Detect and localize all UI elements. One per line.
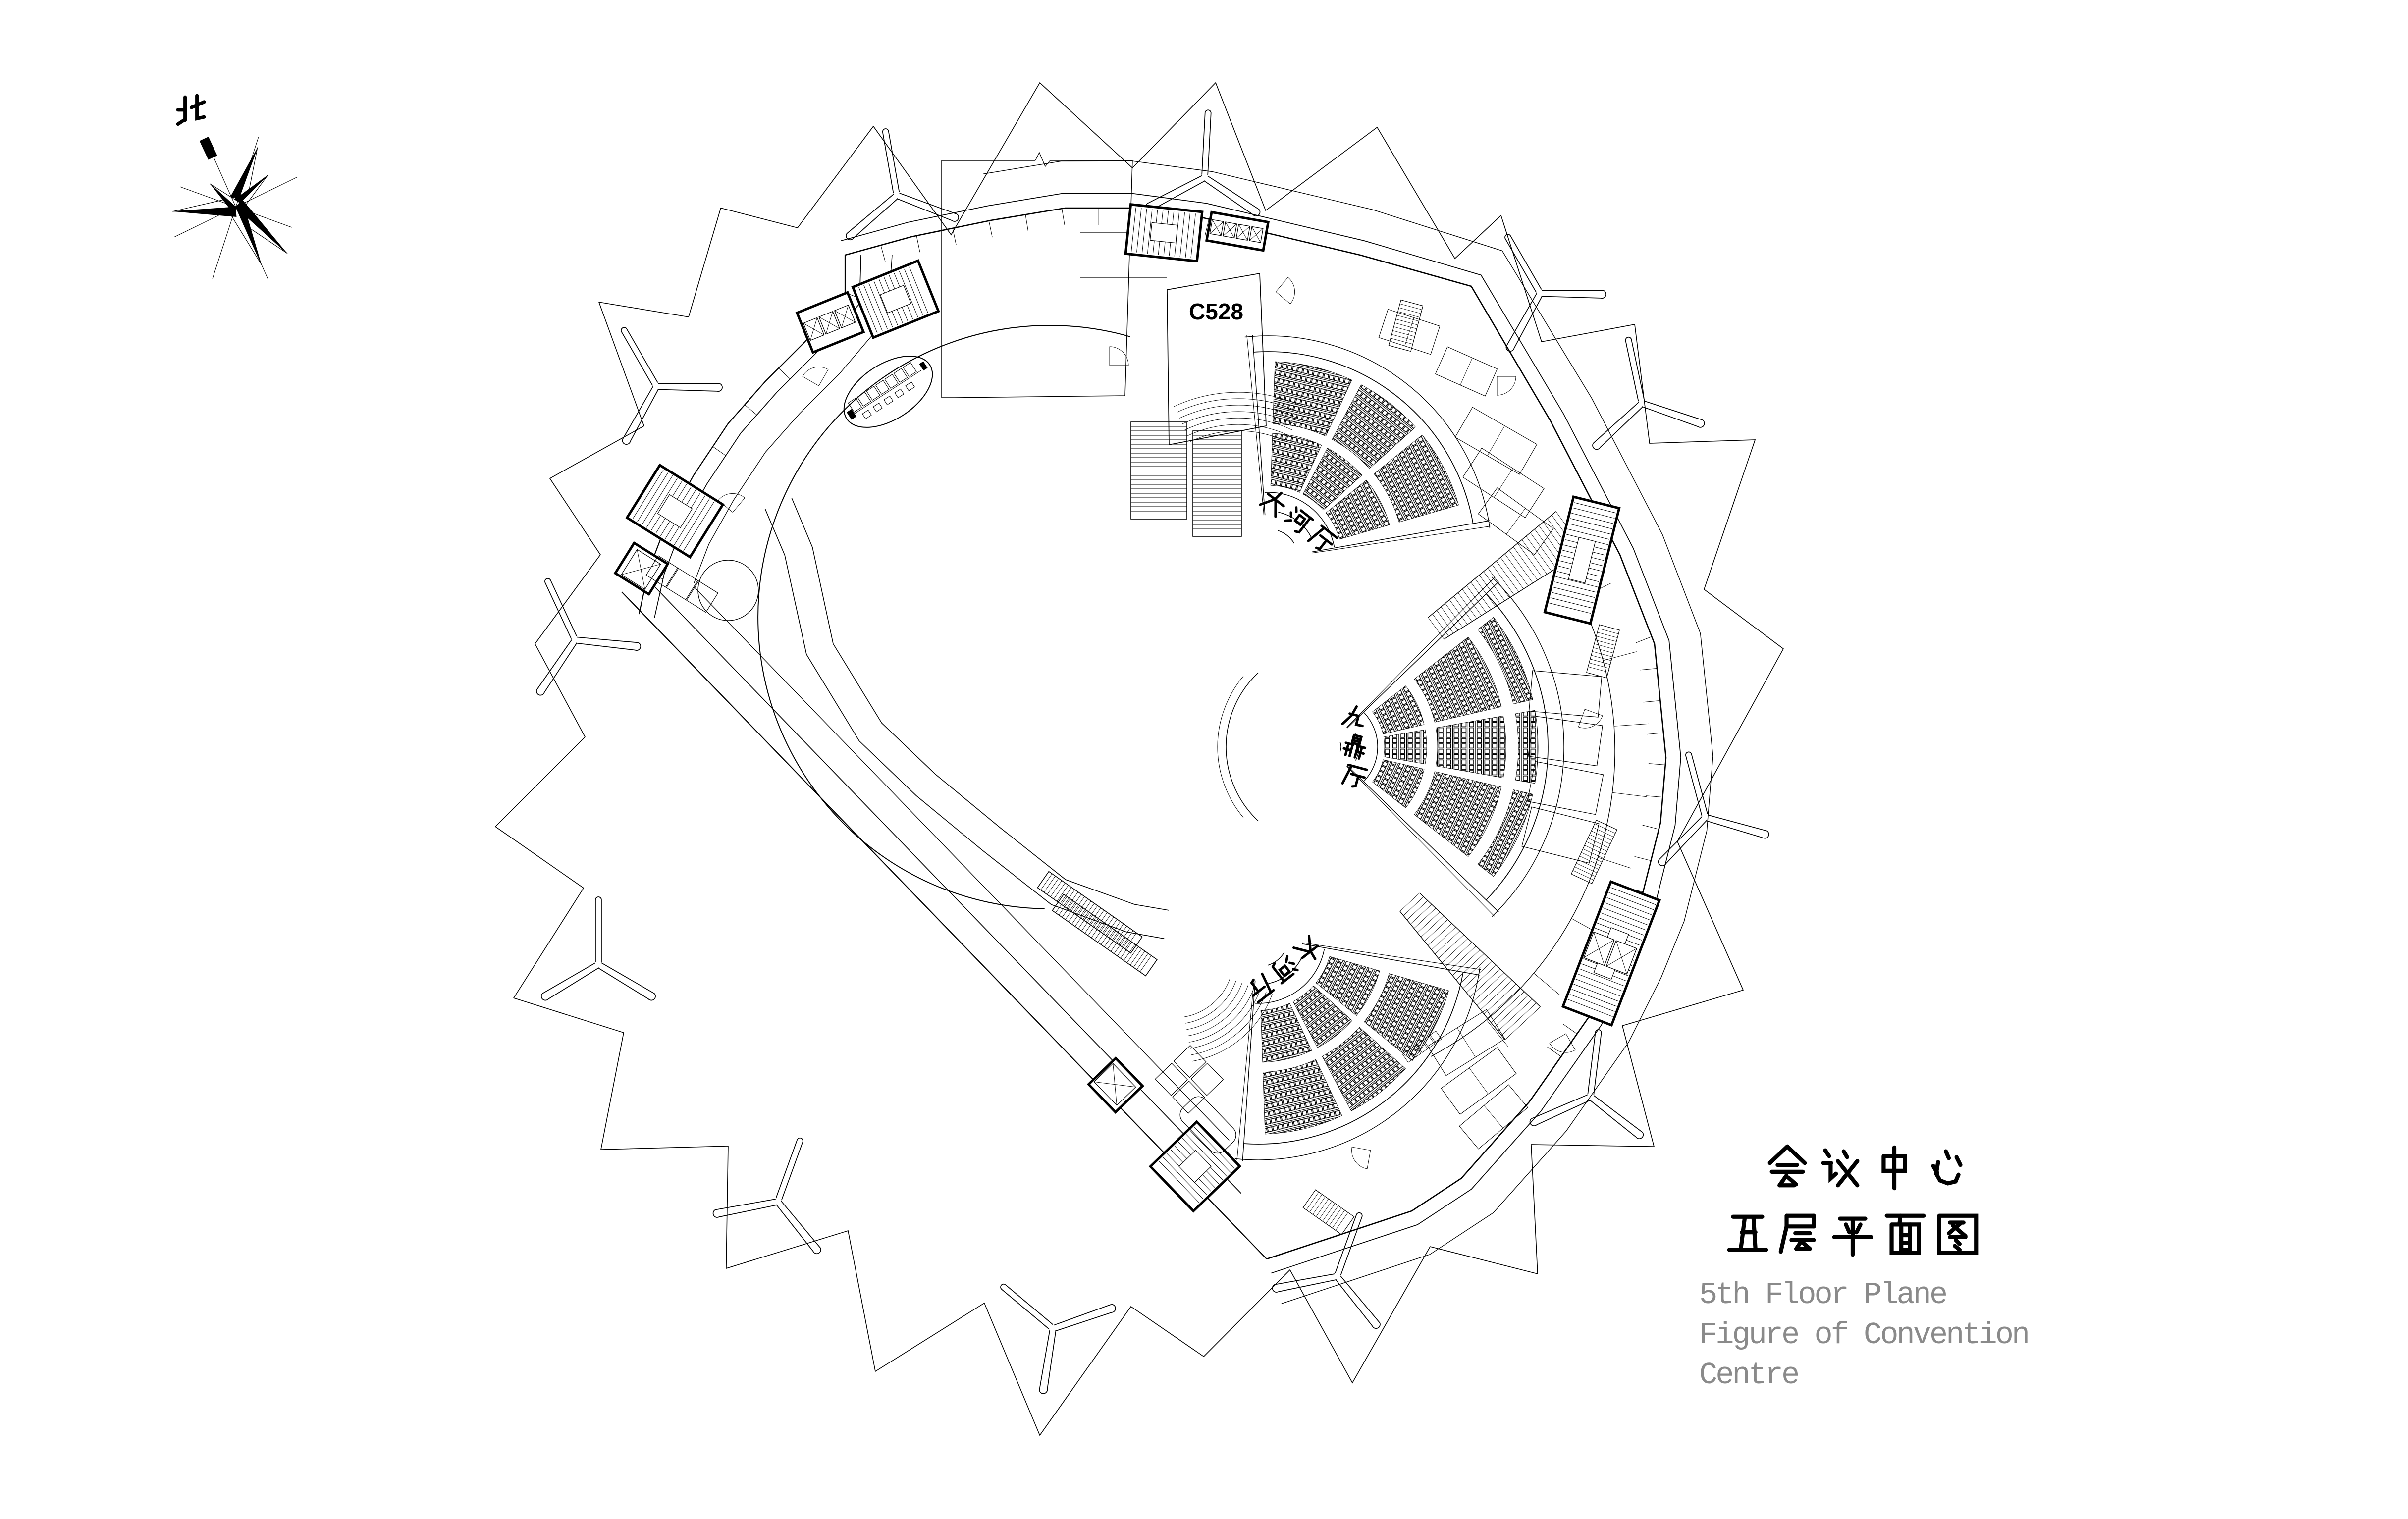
svg-text:5th Floor Plane: 5th Floor Plane — [1699, 1277, 1946, 1312]
svg-text:C528: C528 — [1189, 299, 1243, 324]
svg-text:Centre: Centre — [1699, 1358, 1798, 1393]
svg-text:Figure of Convention: Figure of Convention — [1699, 1317, 2028, 1353]
